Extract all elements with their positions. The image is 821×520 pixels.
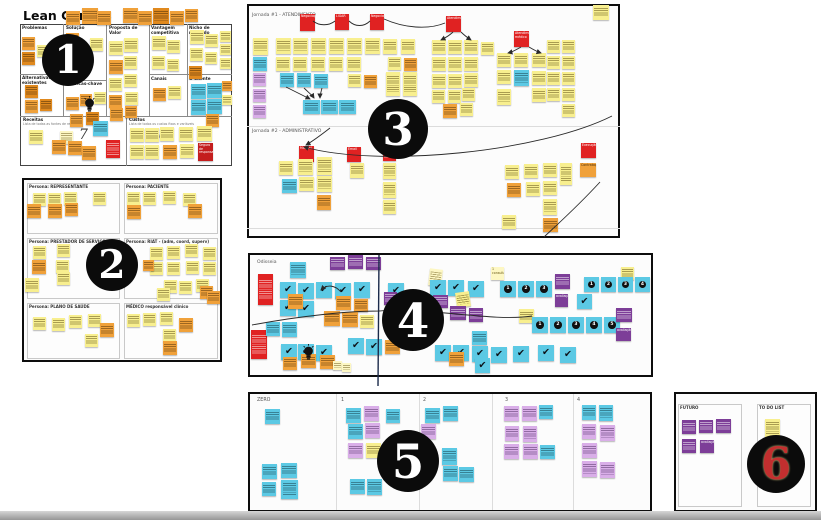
sticky-note[interactable] [288, 294, 303, 309]
sticky-note[interactable] [93, 192, 106, 205]
sticky-note[interactable] [145, 145, 159, 159]
sticky-note[interactable]: 1 [500, 281, 516, 297]
sticky-note[interactable] [523, 426, 537, 442]
sticky-note[interactable] [130, 145, 144, 159]
sticky-note[interactable] [514, 70, 529, 86]
sticky-note[interactable] [348, 74, 361, 87]
sticky-note[interactable] [52, 140, 66, 154]
sticky-note[interactable] [386, 409, 400, 423]
sticky-note[interactable] [321, 100, 338, 114]
sticky-note[interactable] [401, 39, 415, 54]
sticky-note[interactable] [464, 57, 478, 71]
sticky-note[interactable] [22, 37, 35, 50]
sticky-note[interactable] [562, 40, 575, 53]
sticky-note[interactable] [93, 121, 108, 136]
sticky-scribble-text [315, 77, 326, 86]
sticky-note[interactable] [593, 5, 609, 20]
sticky-note[interactable] [106, 140, 120, 158]
sticky-note[interactable] [462, 88, 475, 101]
sticky-note[interactable] [504, 406, 519, 421]
sticky-note[interactable]: ✔ [366, 339, 382, 355]
sticky-note[interactable] [124, 56, 137, 69]
step-badge-2[interactable]: 2 [86, 239, 138, 291]
sticky-note[interactable] [109, 41, 123, 55]
sticky-note[interactable] [532, 88, 546, 102]
sticky-note[interactable] [57, 272, 70, 285]
sticky-note[interactable] [582, 424, 596, 439]
sticky-note[interactable] [682, 439, 696, 453]
sticky-note[interactable]: Atendimento [446, 16, 461, 32]
sticky-note[interactable] [180, 144, 194, 158]
sticky-note[interactable] [168, 86, 181, 99]
sticky-note[interactable] [163, 341, 177, 355]
sticky-note[interactable] [222, 95, 232, 105]
sticky-note[interactable] [582, 443, 597, 458]
sticky-note[interactable] [167, 59, 179, 71]
sticky-note[interactable]: Seguro de responsab. [198, 143, 213, 161]
sticky-note[interactable] [562, 88, 575, 101]
sticky-note[interactable]: ✔ [348, 338, 364, 354]
sticky-note[interactable]: 4 [635, 277, 650, 292]
sticky-note[interactable] [354, 299, 368, 312]
sticky-note[interactable] [502, 215, 516, 229]
sticky-note[interactable] [276, 38, 291, 54]
sticky-note[interactable] [207, 291, 220, 304]
sticky-note[interactable] [366, 257, 381, 270]
sticky-note[interactable] [281, 463, 297, 478]
sticky-note[interactable] [253, 73, 266, 86]
sticky-note[interactable] [547, 88, 560, 101]
sticky-note[interactable] [157, 288, 170, 301]
sticky-note[interactable] [432, 57, 446, 71]
sticky-note[interactable] [207, 83, 222, 98]
sticky-note[interactable] [265, 409, 280, 424]
step-badge-6[interactable]: 6 [747, 435, 805, 493]
sticky-note[interactable] [253, 89, 266, 102]
sticky-note[interactable]: 2 [550, 317, 566, 333]
sticky-note[interactable] [299, 177, 314, 191]
sticky-note[interactable] [716, 419, 731, 433]
sticky-note[interactable] [70, 114, 83, 127]
sticky-note[interactable] [526, 182, 540, 196]
sticky-note[interactable] [459, 467, 474, 482]
sticky-note[interactable] [582, 461, 597, 477]
sticky-note[interactable] [524, 164, 538, 178]
sticky-note[interactable] [523, 444, 538, 459]
sticky-note[interactable] [367, 479, 382, 495]
sticky-note[interactable] [222, 81, 232, 91]
sticky-scribble-text [161, 130, 172, 139]
sticky-note[interactable]: Negociação [300, 14, 315, 31]
sticky-note[interactable] [220, 44, 231, 55]
sticky-note[interactable] [52, 318, 65, 331]
sticky-note[interactable] [562, 56, 575, 69]
sticky-note[interactable] [547, 72, 560, 85]
sticky-note[interactable] [365, 423, 380, 438]
sticky-note[interactable] [388, 57, 401, 70]
sticky-note[interactable] [346, 408, 361, 423]
sticky-note[interactable] [560, 163, 572, 185]
sticky-note[interactable] [258, 274, 273, 305]
sticky-note[interactable] [505, 426, 519, 441]
sticky-note[interactable] [540, 445, 555, 459]
sticky-note[interactable] [600, 462, 615, 478]
sticky-note[interactable]: 2 [601, 277, 616, 292]
sticky-note[interactable] [124, 38, 138, 52]
sticky-note[interactable] [386, 72, 400, 96]
sticky-note[interactable] [163, 191, 176, 204]
sticky-note[interactable] [497, 53, 511, 67]
sticky-note[interactable] [350, 163, 364, 178]
sticky-note[interactable] [330, 257, 345, 270]
sticky-note[interactable] [163, 145, 177, 159]
sticky-note[interactable] [40, 99, 52, 111]
sticky-note[interactable] [279, 161, 293, 175]
sticky-scribble-text [312, 60, 323, 69]
sticky-note[interactable] [464, 73, 478, 87]
sticky-note[interactable] [547, 56, 560, 69]
sticky-note[interactable] [29, 130, 43, 144]
sticky-note[interactable] [186, 261, 199, 274]
sticky-note[interactable]: 3 [568, 317, 584, 333]
sticky-note[interactable]: ✔ [468, 281, 484, 297]
sticky-note[interactable]: ✔ [560, 347, 576, 363]
sticky-note[interactable]: avaliação [700, 440, 714, 453]
sticky-scribble-text [433, 43, 444, 52]
sticky-note[interactable]: ✔ [538, 345, 554, 361]
sticky-note[interactable] [472, 331, 487, 345]
sticky-note[interactable] [348, 443, 363, 458]
sticky-note[interactable] [555, 274, 570, 289]
sticky-note[interactable] [505, 165, 519, 179]
sticky-note[interactable] [160, 312, 173, 325]
sticky-note[interactable] [348, 424, 363, 439]
sticky-note[interactable]: Negociação [370, 14, 384, 30]
sticky-note[interactable] [365, 38, 380, 54]
sticky-note[interactable] [425, 408, 440, 423]
step-number-dot: 3 [540, 285, 548, 293]
sticky-note[interactable] [110, 108, 123, 121]
sticky-note[interactable] [109, 78, 122, 91]
sticky-note[interactable] [383, 182, 396, 198]
sticky-note[interactable] [220, 58, 231, 69]
step-badge-3[interactable]: 3 [368, 99, 428, 159]
sticky-note[interactable] [276, 57, 290, 71]
sticky-note[interactable] [185, 9, 198, 22]
sticky-note[interactable] [682, 420, 696, 434]
sticky-note[interactable] [317, 195, 331, 210]
sticky-note[interactable] [347, 38, 362, 54]
sticky-note[interactable] [449, 352, 464, 366]
sticky-text: 1 consulta [491, 267, 504, 280]
sticky-note[interactable] [127, 205, 141, 219]
sticky-note[interactable] [432, 74, 446, 88]
sticky-note[interactable] [464, 40, 478, 54]
sticky-note[interactable] [66, 97, 79, 110]
sticky-scribble-text [198, 129, 210, 139]
sticky-note[interactable]: 3 [618, 277, 633, 292]
sticky-note[interactable] [185, 244, 198, 257]
sticky-note[interactable]: Execução [581, 143, 596, 158]
sticky-note[interactable] [283, 357, 297, 370]
sticky-note[interactable] [25, 278, 39, 292]
sticky-note[interactable] [179, 318, 193, 332]
sticky-note[interactable] [69, 315, 82, 328]
sticky-note[interactable] [153, 8, 169, 24]
sticky-note[interactable] [507, 183, 521, 197]
sticky-note[interactable] [150, 247, 163, 260]
sticky-note[interactable] [125, 92, 138, 105]
sticky-note[interactable] [504, 444, 519, 459]
sticky-note[interactable] [314, 74, 328, 88]
sticky-note[interactable] [82, 8, 98, 24]
sticky-note[interactable] [582, 405, 596, 420]
sticky-note[interactable] [167, 40, 180, 53]
sticky-note[interactable] [82, 146, 96, 160]
sticky-note[interactable] [469, 308, 483, 322]
sticky-note[interactable] [317, 157, 332, 175]
sticky-note[interactable]: ✔ [513, 346, 529, 362]
sticky-note[interactable] [317, 176, 332, 192]
sticky-note[interactable] [699, 420, 713, 433]
step-badge-4[interactable]: 4 [382, 289, 444, 351]
sticky-note[interactable] [543, 199, 557, 215]
sticky-scribble-text [164, 331, 175, 339]
sticky-note[interactable] [297, 73, 311, 87]
sticky-note[interactable] [68, 141, 82, 155]
sticky-note[interactable] [262, 482, 276, 496]
sticky-note[interactable] [266, 322, 280, 336]
sticky-note[interactable] [448, 57, 462, 71]
sticky-note[interactable] [109, 95, 122, 108]
sticky-note[interactable]: ✔ [354, 282, 370, 298]
step-badge-5[interactable]: 5 [377, 430, 439, 492]
sticky-note[interactable]: ✔ [430, 280, 446, 296]
sticky-note[interactable] [350, 479, 365, 494]
sticky-note[interactable] [205, 34, 218, 47]
sticky-note[interactable] [22, 52, 35, 65]
sticky-note[interactable] [25, 85, 38, 98]
sticky-note[interactable] [203, 262, 216, 275]
sticky-note[interactable] [443, 466, 458, 481]
sticky-note[interactable] [342, 363, 351, 372]
sticky-note[interactable] [32, 260, 46, 274]
sticky-note[interactable] [127, 314, 140, 327]
sticky-note[interactable] [197, 126, 212, 141]
sticky-note[interactable] [191, 84, 206, 99]
sticky-note[interactable] [167, 246, 180, 259]
sticky-note[interactable] [205, 52, 217, 64]
sticky-note[interactable] [324, 311, 340, 326]
sticky-note[interactable] [189, 66, 202, 79]
sticky-note[interactable] [170, 11, 184, 25]
sticky-scribble-text [207, 116, 218, 124]
sticky-note[interactable] [94, 92, 106, 104]
sticky-note[interactable] [138, 11, 152, 25]
sticky-note[interactable] [329, 57, 343, 71]
sticky-note[interactable] [85, 334, 98, 347]
sticky-note[interactable] [152, 36, 166, 50]
sticky-note[interactable] [290, 262, 306, 278]
sticky-note[interactable]: Contratação [580, 163, 596, 177]
sticky-note[interactable] [253, 57, 267, 71]
sticky-note[interactable] [448, 40, 462, 54]
step-badge-1[interactable]: 1 [42, 34, 94, 86]
sticky-note[interactable] [329, 38, 344, 54]
sticky-note[interactable] [404, 58, 417, 71]
sticky-note[interactable] [339, 100, 356, 114]
sticky-note[interactable] [360, 315, 374, 328]
sticky-note[interactable]: LIGAR [335, 14, 349, 30]
sticky-note[interactable] [251, 330, 267, 359]
sticky-scribble-text [334, 363, 341, 369]
sticky-note[interactable] [347, 57, 361, 71]
sticky-note[interactable] [432, 90, 445, 103]
sticky-note[interactable] [336, 296, 351, 310]
sticky-note[interactable]: 1 [584, 277, 599, 292]
sticky-note[interactable] [450, 306, 466, 320]
sticky-note[interactable] [188, 204, 202, 218]
sticky-note[interactable] [203, 247, 216, 260]
checkmark-icon: ✔ [339, 286, 347, 296]
sticky-note[interactable] [124, 74, 137, 87]
sticky-note[interactable] [190, 30, 204, 44]
sticky-note[interactable] [282, 179, 297, 193]
sticky-note[interactable]: Atendimento médico [514, 31, 529, 47]
sticky-note[interactable] [253, 38, 268, 55]
sticky-scribble-text [259, 280, 271, 300]
sticky-note[interactable] [616, 308, 632, 322]
sticky-note[interactable] [143, 192, 156, 205]
sticky-note[interactable]: 2 [518, 281, 534, 297]
sticky-note[interactable] [207, 99, 222, 114]
sticky-note[interactable] [333, 361, 342, 370]
sticky-note[interactable] [383, 39, 397, 54]
sticky-note[interactable] [303, 100, 320, 114]
sticky-note[interactable] [281, 480, 298, 499]
sticky-note[interactable] [348, 255, 363, 269]
sticky-note[interactable] [443, 104, 457, 118]
sticky-note[interactable]: 3 [536, 281, 552, 297]
sticky-note[interactable] [130, 128, 144, 142]
sticky-note[interactable] [220, 31, 231, 42]
sticky-note[interactable] [383, 200, 396, 214]
sticky-note[interactable] [293, 57, 307, 71]
sticky-note[interactable] [298, 159, 313, 175]
sticky-note[interactable] [443, 406, 458, 421]
sticky-note[interactable] [145, 128, 159, 142]
sticky-note[interactable] [497, 70, 511, 84]
sticky-note[interactable]: ✔ [577, 294, 592, 309]
sticky-note[interactable] [33, 317, 46, 330]
sticky-note[interactable] [311, 38, 326, 54]
sticky-note[interactable] [27, 204, 41, 218]
step-number-dot: 5 [608, 321, 616, 329]
sticky-note[interactable]: avaliação [555, 294, 568, 307]
sticky-note[interactable]: 1 consulta [491, 267, 504, 280]
sticky-note[interactable] [153, 88, 166, 101]
sticky-note[interactable] [481, 42, 494, 55]
sticky-note[interactable] [562, 72, 575, 85]
sticky-note[interactable] [109, 60, 123, 74]
sticky-note[interactable] [143, 313, 156, 326]
sticky-note[interactable]: ✔ [491, 347, 507, 363]
sticky-note[interactable] [282, 322, 297, 337]
sticky-note[interactable] [383, 163, 396, 179]
sticky-note[interactable] [48, 204, 62, 218]
sticky-scribble-text [384, 42, 395, 52]
sticky-note[interactable] [100, 323, 114, 337]
sticky-note[interactable] [342, 312, 358, 327]
sticky-note[interactable] [448, 90, 461, 103]
sticky-note[interactable] [364, 75, 377, 88]
sticky-note[interactable] [562, 104, 575, 117]
sticky-note[interactable] [364, 406, 379, 421]
sticky-note[interactable] [293, 38, 308, 54]
sticky-note[interactable] [532, 71, 546, 85]
sticky-note[interactable] [123, 8, 138, 23]
sticky-note[interactable]: 4 [586, 317, 602, 333]
sticky-note[interactable]: Email [347, 147, 361, 162]
sticky-note[interactable] [311, 57, 325, 71]
sticky-note[interactable] [65, 203, 78, 216]
sticky-note[interactable] [448, 74, 462, 88]
sticky-note[interactable]: avaliação [616, 328, 631, 341]
sticky-note[interactable] [179, 281, 192, 294]
sticky-note[interactable] [543, 163, 557, 177]
sticky-note[interactable] [539, 405, 553, 419]
sticky-scribble-text [544, 202, 555, 212]
sticky-note[interactable] [143, 260, 154, 271]
sticky-note[interactable]: ✔ [316, 282, 332, 298]
sticky-note[interactable] [543, 181, 557, 195]
sticky-note[interactable] [33, 246, 46, 259]
sticky-note[interactable] [280, 73, 294, 87]
sticky-scribble-text [523, 409, 535, 419]
sticky-note[interactable] [600, 425, 615, 441]
sticky-note[interactable] [403, 72, 417, 96]
sticky-note[interactable] [25, 100, 38, 113]
sticky-note[interactable] [191, 100, 206, 115]
sticky-note[interactable] [532, 53, 546, 67]
sticky-note[interactable] [514, 53, 528, 67]
sticky-note[interactable] [432, 40, 446, 54]
sticky-note[interactable] [460, 103, 473, 116]
sticky-note[interactable] [547, 40, 560, 53]
sticky-note[interactable] [125, 106, 137, 118]
sticky-note[interactable] [190, 48, 203, 61]
sticky-note[interactable] [543, 218, 558, 232]
sticky-note[interactable] [253, 105, 266, 118]
sticky-note[interactable] [442, 448, 457, 465]
sticky-note[interactable] [57, 244, 70, 257]
sticky-note[interactable] [262, 464, 277, 479]
sticky-note[interactable] [160, 127, 174, 141]
sticky-note[interactable] [167, 262, 180, 275]
checkmark-icon: ✔ [472, 284, 480, 294]
sticky-scribble-text [26, 281, 37, 290]
sticky-note[interactable] [66, 11, 80, 25]
sticky-note[interactable] [97, 11, 111, 25]
sticky-note[interactable] [497, 89, 511, 105]
sticky-note[interactable] [179, 127, 193, 141]
sticky-note[interactable] [127, 192, 140, 205]
sticky-note[interactable] [522, 406, 537, 421]
sticky-note[interactable] [599, 405, 613, 421]
sticky-note[interactable] [152, 56, 165, 69]
sticky-note[interactable]: 1 [532, 317, 548, 333]
sticky-note[interactable]: ✔ [475, 358, 490, 373]
